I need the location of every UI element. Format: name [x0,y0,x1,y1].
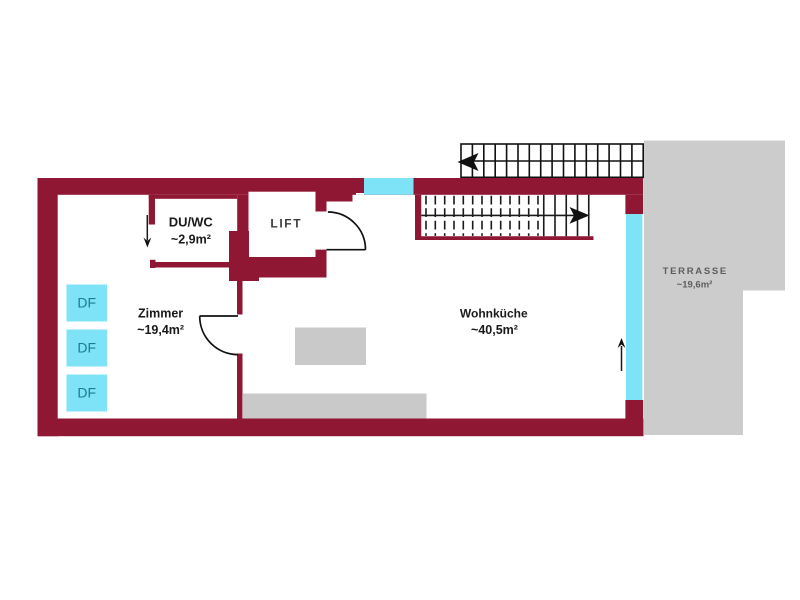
svg-text:TERRASSE: TERRASSE [663,266,728,277]
svg-text:~19,4m²: ~19,4m² [137,323,184,337]
svg-text:~19,6m²: ~19,6m² [677,280,713,291]
svg-text:Wohnküche: Wohnküche [460,307,528,321]
svg-text:DF: DF [77,295,96,311]
svg-text:~40,5m²: ~40,5m² [471,323,518,337]
svg-text:LIFT: LIFT [270,217,302,231]
svg-text:Zimmer: Zimmer [138,307,183,321]
svg-text:DF: DF [77,340,96,356]
svg-text:DF: DF [77,385,96,401]
svg-text:~2,9m²: ~2,9m² [171,233,211,247]
svg-text:DU/WC: DU/WC [169,215,214,230]
